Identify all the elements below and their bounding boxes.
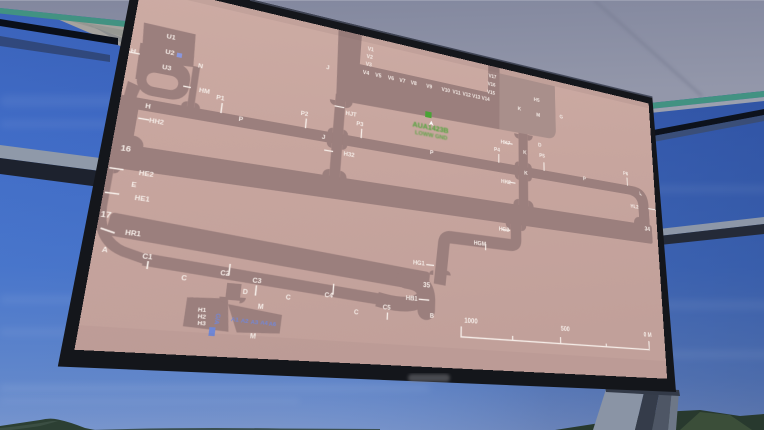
- svg-text:V8: V8: [411, 80, 418, 87]
- svg-text:17: 17: [100, 210, 113, 221]
- svg-text:C: C: [285, 294, 291, 301]
- svg-text:K: K: [518, 106, 521, 112]
- svg-text:C3: C3: [252, 278, 262, 286]
- svg-text:1000: 1000: [464, 316, 478, 325]
- svg-text:V5: V5: [375, 73, 382, 80]
- svg-text:D: D: [242, 289, 248, 297]
- svg-text:A1: A1: [231, 317, 239, 324]
- svg-text:G: G: [559, 114, 563, 120]
- svg-text:C2: C2: [220, 270, 230, 278]
- svg-text:C5: C5: [383, 304, 391, 311]
- svg-text:P3: P3: [356, 121, 364, 128]
- svg-text:C: C: [354, 309, 359, 316]
- svg-text:0 M: 0 M: [643, 331, 651, 339]
- svg-text:C4: C4: [324, 292, 333, 299]
- svg-text:V9: V9: [426, 84, 432, 91]
- svg-text:H3: H3: [197, 321, 207, 328]
- svg-text:HG1: HG1: [413, 260, 425, 268]
- svg-text:A6: A6: [268, 322, 276, 329]
- svg-text:HR1: HR1: [124, 230, 141, 239]
- svg-text:V6: V6: [388, 75, 395, 82]
- svg-text:V7: V7: [399, 78, 406, 85]
- svg-text:P4: P4: [494, 147, 500, 153]
- svg-text:C: C: [181, 275, 188, 283]
- svg-text:500: 500: [561, 325, 570, 333]
- svg-text:N: N: [198, 63, 204, 70]
- svg-text:K: K: [524, 171, 528, 177]
- svg-text:D: D: [538, 143, 541, 149]
- svg-text:34: 34: [644, 225, 650, 232]
- svg-text:P: P: [583, 176, 586, 182]
- svg-text:J: J: [322, 134, 326, 141]
- svg-text:P2: P2: [300, 111, 308, 118]
- svg-text:C1: C1: [142, 253, 153, 261]
- svg-text:HB1: HB1: [406, 295, 418, 302]
- svg-text:A: A: [101, 247, 108, 255]
- svg-text:35: 35: [423, 281, 430, 290]
- svg-text:A3: A3: [250, 319, 258, 326]
- svg-text:V4: V4: [363, 70, 370, 77]
- svg-text:H5: H5: [534, 97, 540, 103]
- svg-text:H: H: [145, 103, 151, 110]
- svg-text:HG2: HG2: [499, 226, 510, 233]
- svg-text:B: B: [430, 313, 434, 320]
- svg-text:J: J: [326, 65, 330, 71]
- svg-text:K: K: [523, 150, 526, 156]
- svg-text:M: M: [536, 113, 540, 119]
- svg-text:P1: P1: [216, 95, 225, 103]
- svg-text:P6: P6: [623, 171, 628, 177]
- svg-text:P: P: [430, 150, 434, 156]
- svg-text:A2: A2: [240, 318, 248, 325]
- svg-text:M: M: [257, 304, 264, 312]
- svg-text:P5: P5: [539, 153, 545, 159]
- svg-text:V3: V3: [365, 62, 372, 69]
- svg-text:H: H: [130, 48, 136, 55]
- svg-text:V2: V2: [366, 54, 373, 61]
- svg-text:16: 16: [120, 144, 132, 154]
